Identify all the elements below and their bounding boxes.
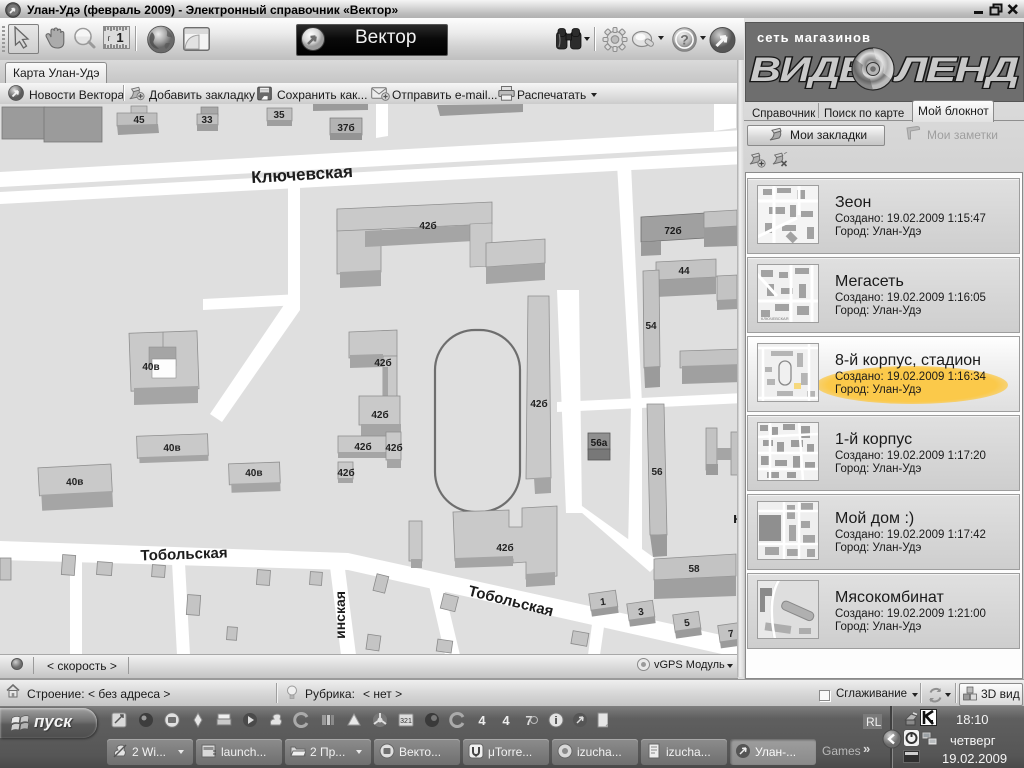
svg-text:ВИДЕ: ВИДЕ [750, 51, 869, 89]
svg-text:72б: 72б [664, 225, 681, 237]
svg-text:37б: 37б [337, 122, 354, 134]
svg-text:42б: 42б [385, 442, 402, 454]
svg-text:45: 45 [133, 115, 145, 126]
svg-text:?: ? [680, 32, 689, 48]
svg-text:56а: 56а [591, 438, 608, 449]
svg-text:42б: 42б [419, 220, 436, 232]
svg-text:42б: 42б [374, 357, 391, 369]
svg-text:i: i [554, 715, 557, 727]
svg-text:КЛЮЧЕВСКАЯ: КЛЮЧЕВСКАЯ [761, 316, 789, 321]
svg-text:42б: 42б [337, 467, 354, 479]
svg-text:33: 33 [201, 115, 213, 126]
svg-text:40в: 40в [245, 468, 263, 480]
svg-text:35: 35 [273, 110, 285, 121]
svg-text:1: 1 [116, 30, 123, 45]
svg-text:40в: 40в [66, 477, 84, 489]
svg-text:г: г [108, 34, 111, 43]
svg-text:4: 4 [478, 713, 486, 728]
svg-text:54: 54 [645, 321, 657, 332]
svg-text:42б: 42б [496, 542, 513, 554]
svg-text:40в: 40в [163, 443, 181, 455]
svg-text:7: 7 [525, 713, 532, 728]
svg-text:58: 58 [688, 564, 700, 575]
svg-text:4: 4 [502, 713, 510, 728]
svg-text:56: 56 [651, 467, 663, 478]
svg-text:42б: 42б [354, 441, 371, 453]
svg-text:44: 44 [678, 266, 690, 277]
svg-text:40в: 40в [142, 362, 159, 373]
svg-text:42б: 42б [371, 409, 388, 421]
svg-text:ЛЕНД: ЛЕНД [892, 51, 1019, 89]
svg-text:42б: 42б [530, 398, 547, 410]
svg-text:Тобольская: Тобольская [140, 544, 228, 564]
svg-text:инская: инская [332, 591, 348, 639]
svg-text:321: 321 [400, 718, 412, 725]
